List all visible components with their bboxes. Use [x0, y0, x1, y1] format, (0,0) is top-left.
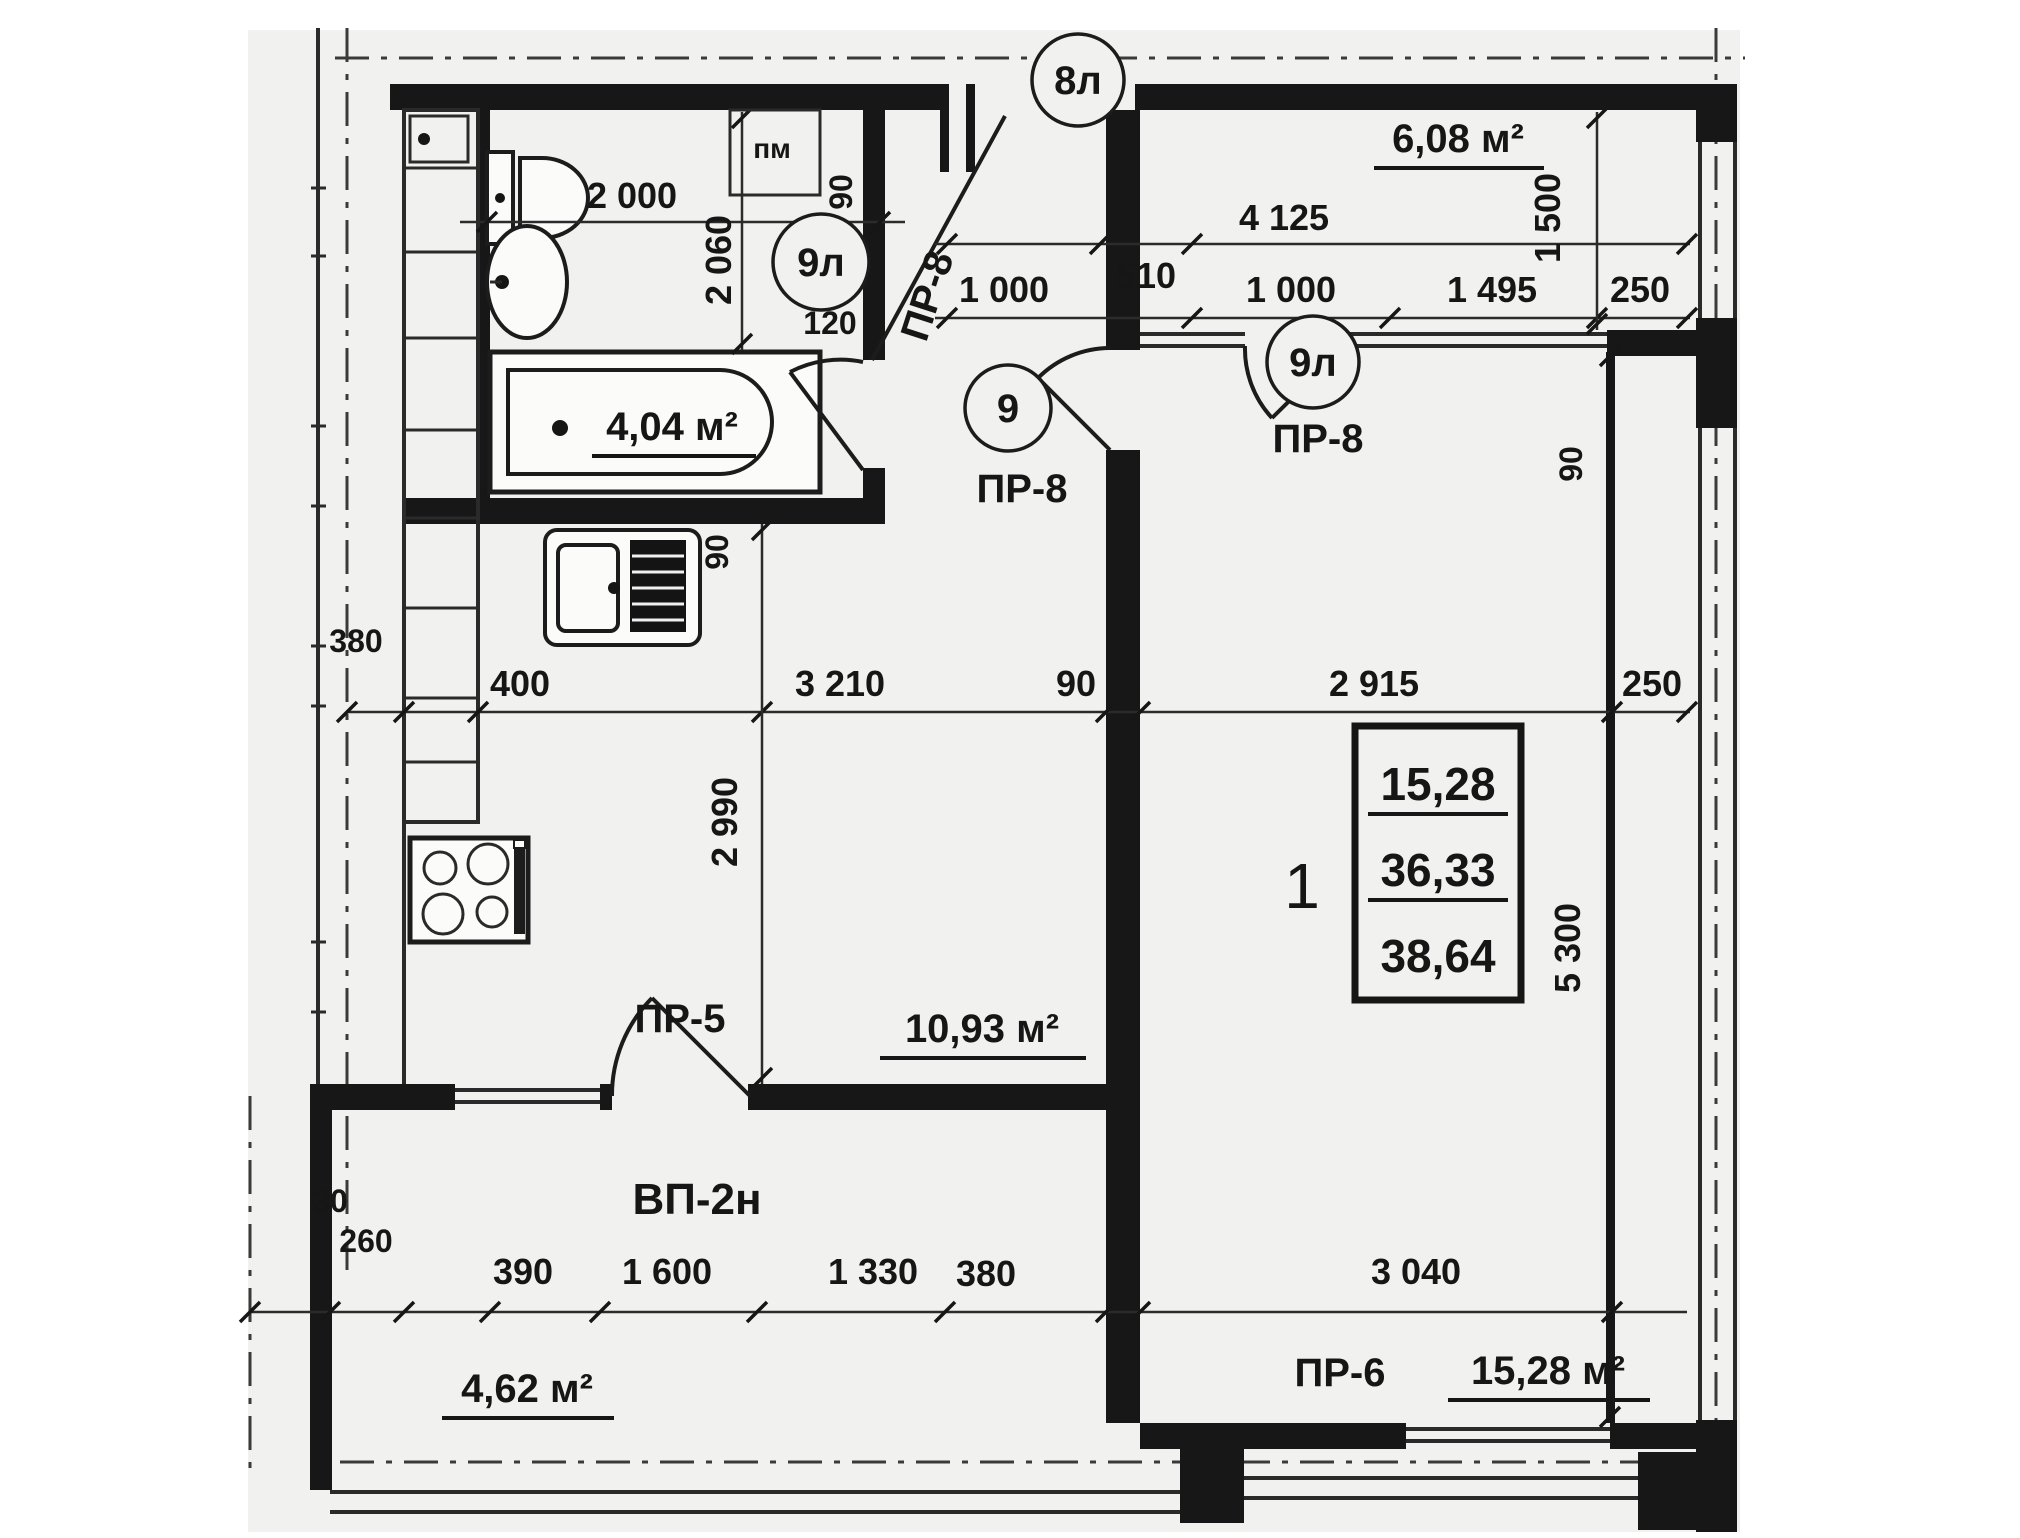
loggia-area-label: 6,08 м² [1392, 117, 1524, 161]
bath-area-label: 4,04 м² [606, 405, 738, 449]
dim-bot-3040: 3 040 [1371, 1251, 1461, 1292]
room-bottom-door-label: ПР-6 [1295, 1351, 1386, 1395]
dim-room-height: 5 300 [1547, 903, 1588, 993]
living-area-value: 15,28 [1380, 758, 1495, 810]
kitchen-area-label: 10,93 м² [905, 1007, 1059, 1051]
floor-plan-drawing: 8л 9л 9 9л 1 15,28 36,33 38,64 6,08 м² 4… [0, 0, 2020, 1538]
dim-mid-90: 90 [1056, 663, 1096, 704]
dim-loggia-1495: 1 495 [1447, 269, 1537, 310]
kitchen-door-label: ПР-5 [635, 997, 726, 1041]
dim-kitchen-height: 2 990 [704, 777, 745, 867]
dim-bath-height: 2 060 [698, 215, 739, 305]
dim-loggia-width: 4 125 [1239, 197, 1329, 238]
dim-bot-1330: 1 330 [828, 1251, 918, 1292]
floor-plan-page: 8л 9л 9 9л 1 15,28 36,33 38,64 6,08 м² 4… [0, 0, 2020, 1538]
dim-loggia-510: 510 [1116, 255, 1176, 296]
dim-loggia-depth: 1 500 [1527, 173, 1568, 263]
hall-door-label: ПР-8 [977, 467, 1068, 511]
room-door-label: ПР-8 [1273, 417, 1364, 461]
bath-sink-icon [487, 226, 567, 338]
dim-loggia-1000: 1 000 [1246, 269, 1336, 310]
dim-balc-260: 260 [339, 1223, 392, 1259]
balcony-unit-label: ВП-2н [632, 1175, 761, 1224]
balcony-area-label: 4,62 м² [461, 1367, 593, 1411]
axis-marker-top-label: 8л [1054, 59, 1102, 103]
dim-bot-380: 380 [956, 1253, 1016, 1294]
dim-bot-1600: 1 600 [622, 1251, 712, 1292]
dim-mid-250: 250 [1622, 663, 1682, 704]
kitchen-sink-icon [545, 530, 700, 645]
vent-label: пм [753, 133, 791, 164]
vent-dot-icon [418, 133, 430, 145]
dim-bot-390: 390 [493, 1251, 553, 1292]
dim-bath-width: 2 000 [587, 175, 677, 216]
dim-jamb-120: 120 [803, 305, 856, 341]
room-area-label: 15,28 м² [1471, 1349, 1625, 1393]
dim-wall-90: 90 [1553, 446, 1589, 482]
apartment-number: 1 [1284, 850, 1320, 922]
dim-hall-1000: 1 000 [959, 269, 1049, 310]
dim-loggia-250: 250 [1610, 269, 1670, 310]
dim-mid-2915: 2 915 [1329, 663, 1419, 704]
dim-entry-90: 90 [823, 174, 859, 210]
axis-marker-hall-label: 9 [997, 387, 1019, 431]
stove-icon [410, 838, 528, 942]
total-area-value: 38,64 [1380, 930, 1496, 982]
heated-area-value: 36,33 [1380, 844, 1495, 896]
dim-mid-400: 400 [490, 663, 550, 704]
axis-marker-bath-label: 9л [797, 241, 845, 285]
dim-sink-90: 90 [699, 534, 735, 570]
dim-balc-30: 30 [312, 1183, 348, 1219]
dim-mid-3210: 3 210 [795, 663, 885, 704]
axis-marker-room-label: 9л [1289, 341, 1337, 385]
dim-cab-380: 380 [329, 623, 382, 659]
